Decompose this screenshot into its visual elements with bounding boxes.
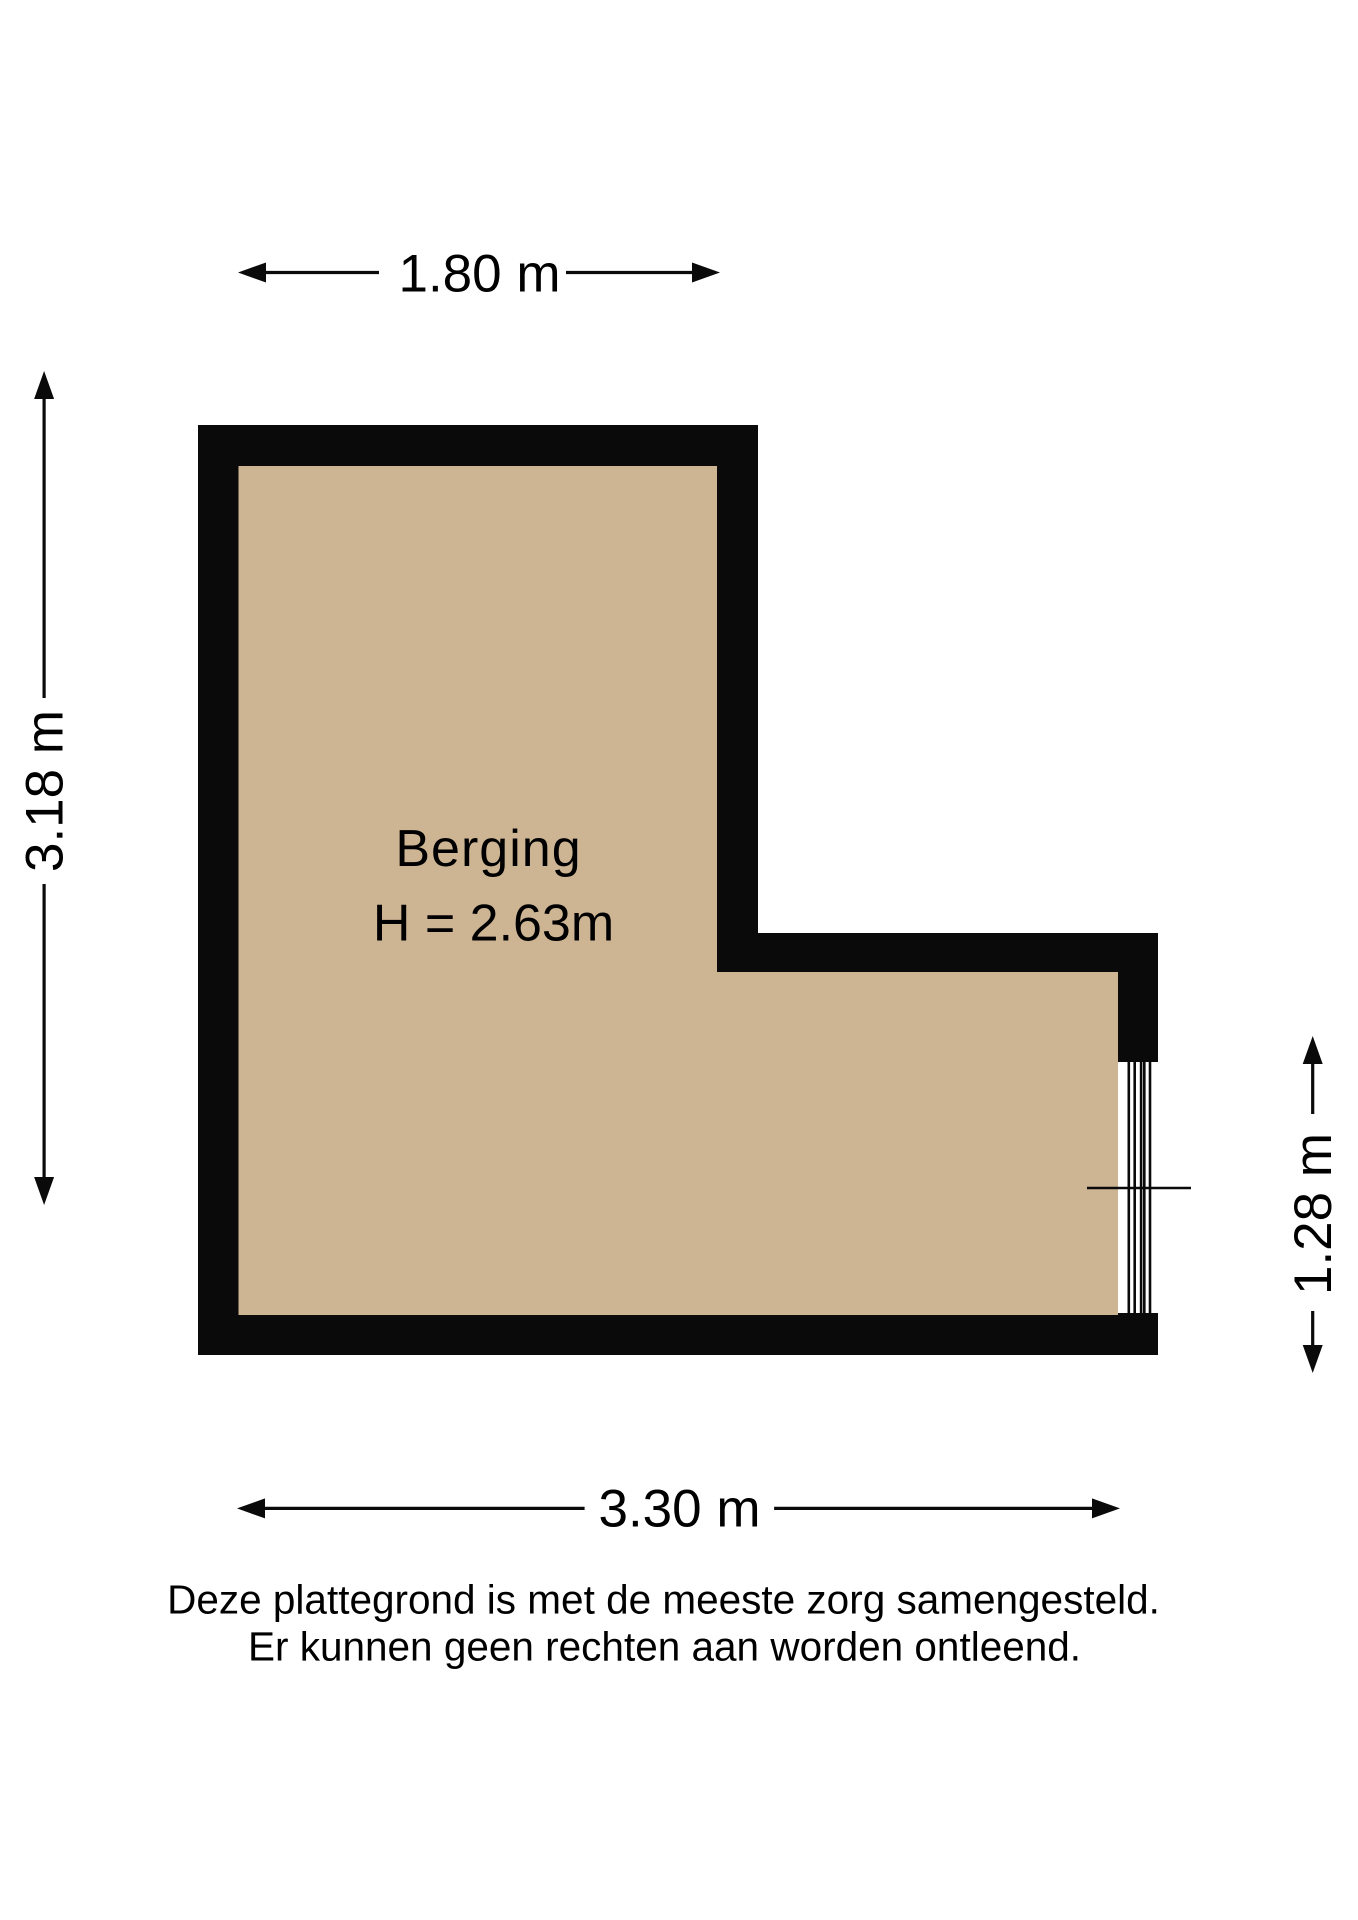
svg-text:3.30 m: 3.30 m — [598, 1479, 760, 1538]
svg-text:Berging: Berging — [395, 820, 581, 878]
svg-text:1.28 m: 1.28 m — [1284, 1133, 1343, 1295]
svg-text:H = 2.63m: H = 2.63m — [373, 895, 614, 953]
svg-text:1.80 m: 1.80 m — [398, 244, 560, 303]
svg-text:Deze plattegrond is met de mee: Deze plattegrond is met de meeste zorg s… — [167, 1577, 1160, 1623]
svg-text:Er kunnen geen rechten aan wor: Er kunnen geen rechten aan worden ontlee… — [248, 1624, 1081, 1670]
svg-text:3.18 m: 3.18 m — [16, 710, 75, 872]
